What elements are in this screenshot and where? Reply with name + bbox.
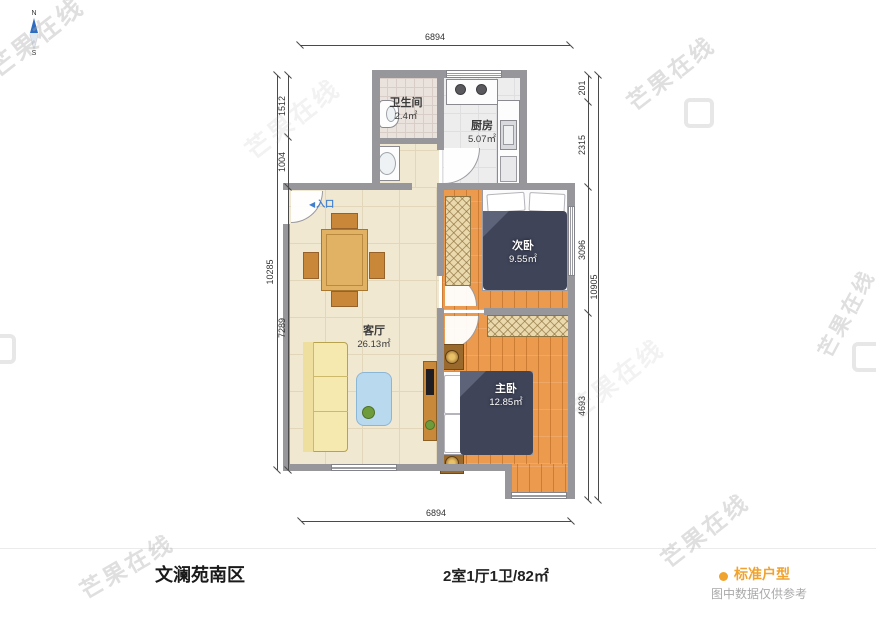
plant-icon [362,406,375,419]
watermark: 芒果在线 [653,484,756,575]
compass-north-label: N [24,10,44,17]
entrance-label: 入口 [316,199,334,209]
washbasin-bowl [378,152,396,175]
nightstand-plant-icon [445,350,459,364]
wall [437,308,444,471]
room-name: 主卧 [462,383,550,397]
sofa-cushion-line [314,411,348,412]
watermark: 芒果在线 [237,69,347,166]
entrance-marker: ◀入口 [309,197,334,210]
wall [520,70,527,190]
compass-south-label: S [24,50,44,57]
room-name: 卫生间 [374,97,438,111]
master-bedroom-label: 主卧 12.85㎡ [462,383,550,409]
entrance-arrow-icon: ◀ [309,200,315,209]
dimension-right-total: 10905 [589,274,599,299]
wardrobe [487,315,571,337]
wardrobe [445,196,471,286]
wall [300,183,412,190]
dimension-bottom: 6894 [426,508,446,518]
watermark: 芒果在线 [0,0,91,85]
type-label: 标准户型 [734,564,790,584]
wall [372,70,380,190]
wall [437,183,575,190]
compass-needle-south [30,34,38,49]
wall [283,464,512,471]
second-bedroom-label: 次卧 9.55㎡ [483,240,563,266]
room-area: 5.07㎡ [450,134,514,146]
tv-icon [426,369,434,395]
pillow [529,192,566,213]
window [446,70,502,78]
compass-icon: N S [24,10,44,57]
room-name: 客厅 [342,325,406,339]
dimension-line-left-inner [288,75,289,470]
dimension-left-seg: 7289 [277,318,287,338]
compass-needle-north [30,18,38,33]
room-area: 26.13㎡ [342,339,406,351]
sofa-cushion-line [314,376,348,377]
dining-chair [331,291,358,307]
bathroom-label: 卫生间 2.4㎡ [374,97,438,123]
watermark-logo-icon [852,342,876,372]
window [568,206,575,276]
rug [356,372,392,426]
dimension-right-seg: 3096 [577,240,587,260]
watermark-logo-icon [0,334,16,364]
dining-chair [303,252,319,279]
dining-chair [369,252,385,279]
room-area: 9.55㎡ [483,254,563,266]
dining-chair [331,213,358,229]
room-name: 厨房 [450,120,514,134]
wall [437,70,444,150]
dimension-line-left-outer [277,75,278,470]
kitchen-appliance [500,156,517,182]
room-area: 12.85㎡ [462,397,550,409]
stove-burner-icon [476,84,487,95]
plant-icon [425,420,435,430]
dimension-top: 6894 [425,32,445,42]
type-bullet-icon [719,572,728,581]
dining-table [321,229,368,291]
community-name: 文澜苑南区 [155,561,245,587]
stove-icon [446,79,498,105]
disclaimer: 图中数据仅供参考 [711,585,807,602]
dimension-line-bottom [301,521,571,522]
sofa-back [303,342,314,452]
wall [437,190,444,276]
stove-burner-icon [455,84,466,95]
living-room-label: 客厅 26.13㎡ [342,325,406,351]
duvet-fold [483,211,509,237]
window [331,464,397,471]
footer-divider [0,548,876,549]
master-bedroom-bay-floor [505,464,568,494]
room-area: 2.4㎡ [374,111,438,123]
watermark: 芒果在线 [810,264,876,363]
wall [372,138,437,144]
kitchen-label: 厨房 5.07㎡ [450,120,514,146]
dimension-line-top [300,45,570,46]
dimension-right-seg: 2315 [577,135,587,155]
window [511,492,567,499]
room-name: 次卧 [483,240,563,254]
wall [484,308,575,315]
dimension-left-seg: 1004 [277,152,287,172]
layout-summary: 2室1厅1卫/82㎡ [443,565,549,586]
dimension-left-seg: 1512 [277,96,287,116]
watermark: 芒果在线 [619,27,722,118]
watermark-logo-icon [684,98,714,128]
floorplan-page: N S [0,0,876,620]
dimension-right-seg: 4693 [577,396,587,416]
dimension-left-total: 10285 [265,259,275,284]
dimension-right-seg: 201 [577,80,587,95]
